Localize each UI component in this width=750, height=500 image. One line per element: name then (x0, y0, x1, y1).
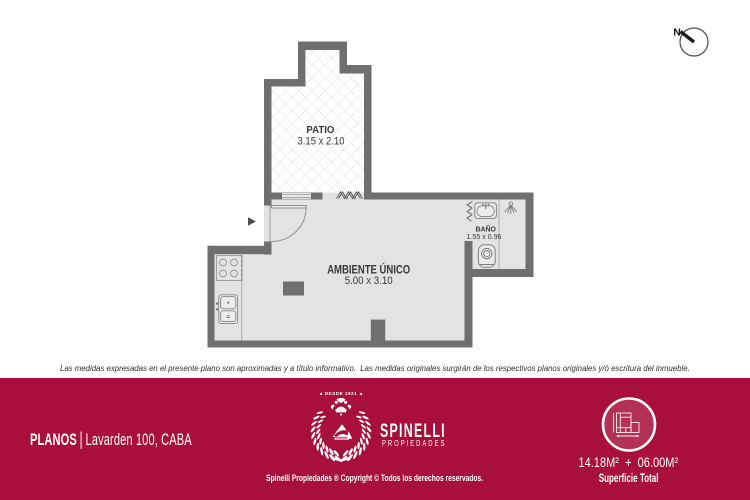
svg-text:5.00 x 3.10: 5.00 x 3.10 (345, 275, 393, 287)
svg-text:1.55 x 0.96: 1.55 x 0.96 (467, 232, 502, 241)
svg-text:3.15 x 2.10: 3.15 x 2.10 (298, 136, 345, 148)
svg-text:N: N (673, 27, 681, 39)
svg-text:PATIO: PATIO (306, 125, 334, 136)
